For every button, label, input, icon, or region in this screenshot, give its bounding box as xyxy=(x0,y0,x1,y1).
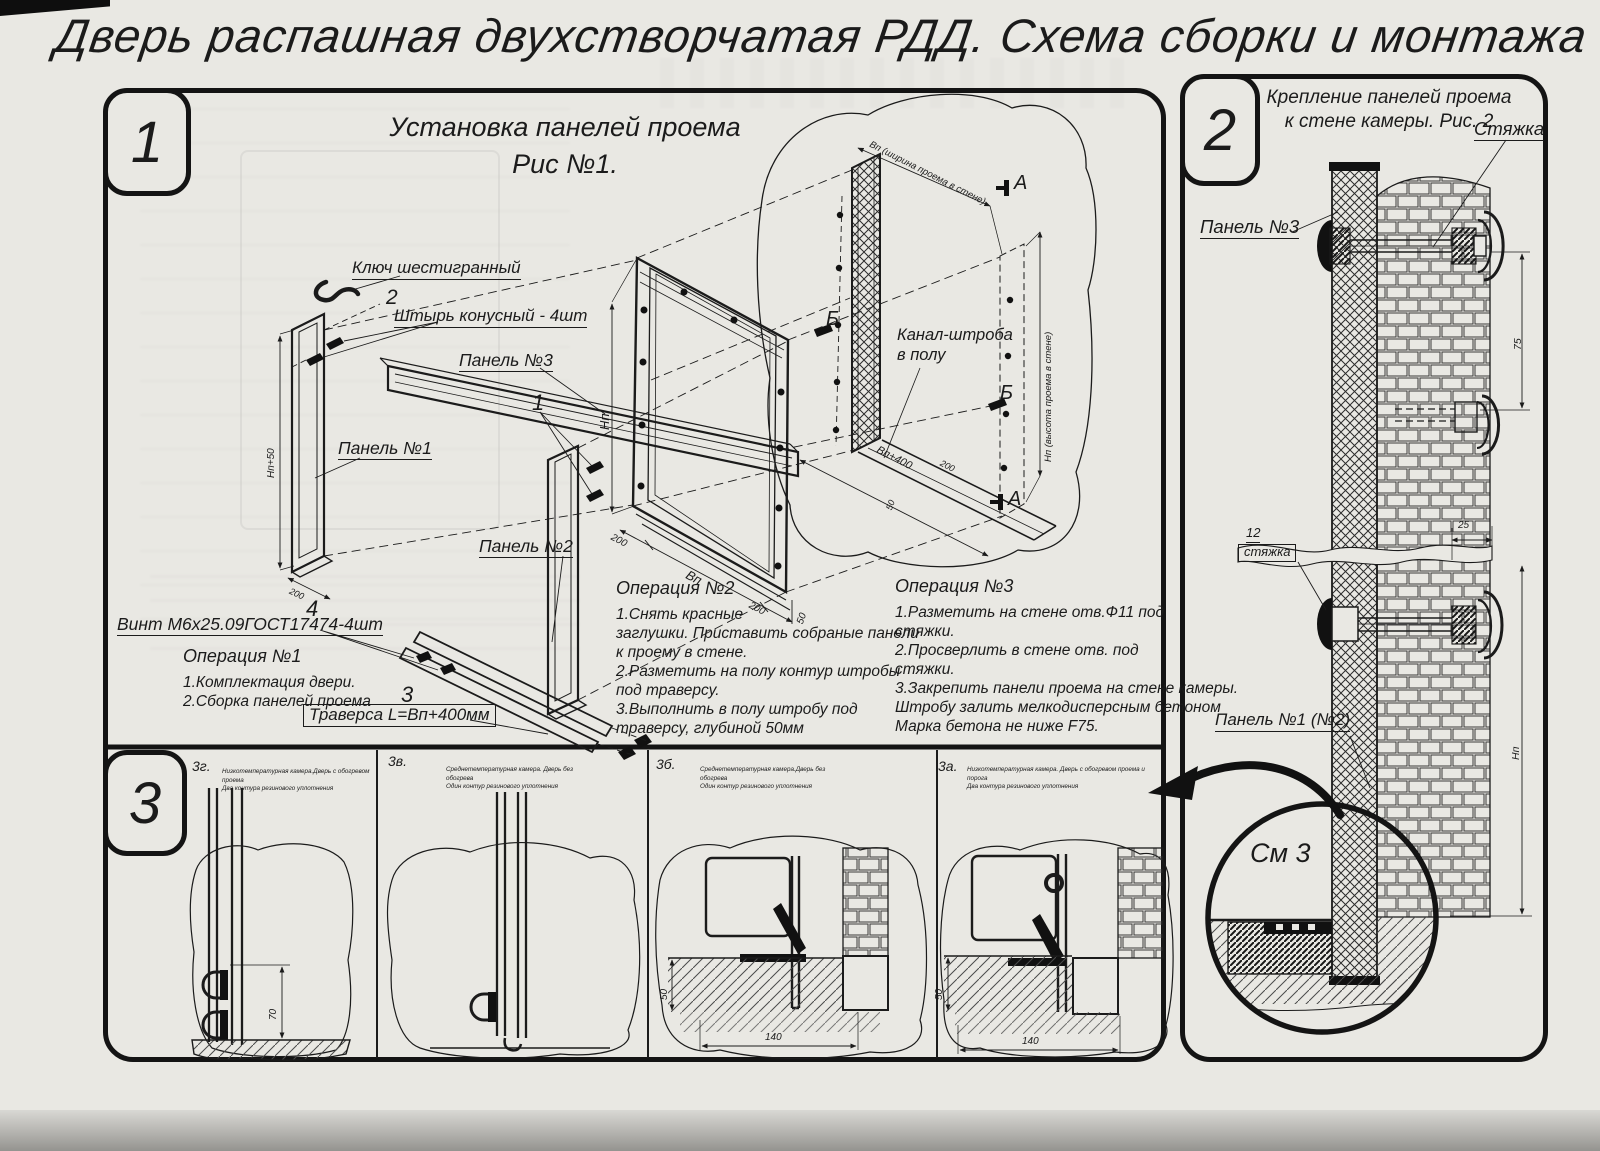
section1-number: 1 xyxy=(131,109,163,176)
panel1-label: Панель №1 xyxy=(338,438,432,460)
operation3-line: 3.Закрепить панели проема на стене камер… xyxy=(895,679,1238,698)
detail-3v-desc1: Среднетемпературная камера. Дверь без об… xyxy=(446,766,601,783)
tie-rod-label-2: стяжка xyxy=(1238,544,1296,562)
dim-50-3b: 50 xyxy=(659,989,671,1000)
detail-3b-desc: Среднетемпературная камера.Дверь без обо… xyxy=(700,766,850,792)
detail-3b-desc2: Один контур резинового уплотнения xyxy=(700,783,850,792)
operation1-line: 2.Сборка панелей проема xyxy=(183,692,371,711)
cone-pin-label: Штырь конусный - 4шт xyxy=(394,306,587,328)
see-detail-label: См 3 xyxy=(1250,838,1311,869)
section-mark-b: Б xyxy=(1000,382,1013,405)
fig1-title-line1: Установка панелей проема xyxy=(380,112,750,143)
channel-label-line2: в полу xyxy=(897,346,945,365)
tie-item-number: 12 xyxy=(1246,526,1260,543)
dim-75: 75 xyxy=(1512,338,1524,350)
detail-3a-code: 3а. xyxy=(938,758,957,774)
detail-arrow xyxy=(1192,765,1340,815)
operation3-block: Операция №3 1.Разметить на стене отв.Ф11… xyxy=(895,576,1238,736)
detail-3g-desc1: Низкотемпературная камера.Дверь с обогре… xyxy=(222,768,380,785)
detail-3a-desc2: Два контура резинового уплотнения xyxy=(967,783,1157,792)
operation1-line: 1.Комплектация двери. xyxy=(183,673,371,692)
panel12-label: Панель №1 (№2) xyxy=(1215,710,1350,732)
operation3-title: Операция №3 xyxy=(895,576,1238,597)
operation3-line: 1.Разметить на стене отв.Ф11 под xyxy=(895,603,1238,622)
detail-3v-desc2: Один контур резинового уплотнения xyxy=(446,783,601,792)
fig2-title-line1: Крепление панелей проема xyxy=(1264,86,1514,110)
operation1-title: Операция №1 xyxy=(183,646,371,667)
dim-140-3a: 140 xyxy=(1022,1036,1039,1048)
detail-3b-code: 3б. xyxy=(656,756,676,772)
operation3-line: Штробу залить мелкодисперсным бетоном xyxy=(895,698,1238,717)
section3-number: 3 xyxy=(129,770,161,837)
panel2-label: Панель №2 xyxy=(479,536,573,558)
detail-3a-desc1: Низкотемпературная камера. Дверь с обогр… xyxy=(967,766,1157,783)
item-no-1: 1 xyxy=(532,390,544,415)
detail-3v-desc: Среднетемпературная камера. Дверь без об… xyxy=(446,766,601,792)
panel3-label-sec2: Панель №3 xyxy=(1200,216,1299,239)
operation2-title: Операция №2 xyxy=(616,578,919,599)
channel-label-line1: Канал-штроба xyxy=(897,326,1013,345)
detail-3v-code: 3в. xyxy=(388,753,407,769)
section-mark-b: Б xyxy=(826,308,839,331)
operation2-line: 3.Выполнить в полу штробу под xyxy=(616,700,919,719)
dim-70-3g: 70 xyxy=(268,1009,280,1020)
operation3-line: 2.Просверлить в стене отв. под xyxy=(895,641,1238,660)
fig1-title: Установка панелей проема Рис №1. xyxy=(380,112,750,180)
detail-3a-desc: Низкотемпературная камера. Дверь с обогр… xyxy=(967,766,1157,792)
dim-25: 25 xyxy=(1458,520,1469,532)
panel3-label: Панель №3 xyxy=(459,350,553,372)
section-mark-a: А xyxy=(1014,172,1027,195)
threshold-details xyxy=(190,788,1173,1060)
line-art-layer xyxy=(0,0,1600,1151)
assembled-frame-view xyxy=(612,258,988,624)
hex-key-icon xyxy=(316,282,358,300)
detail-3g-code: 3г. xyxy=(192,758,211,774)
operation3-line: стяжки. xyxy=(895,622,1238,641)
dim-wall-height: Нп (высота проема в стене) xyxy=(1044,332,1055,462)
dim-140-3b: 140 xyxy=(765,1032,782,1044)
operation2-line: заглушки. Приставить собраные панели xyxy=(616,624,919,643)
hex-key-label: Ключ шестигранный xyxy=(352,258,521,280)
dim-np: Нп xyxy=(598,413,613,430)
dim-np-sec2: Нп xyxy=(1510,747,1522,760)
operation1-block: Операция №1 1.Комплектация двери. 2.Сбор… xyxy=(183,646,371,711)
operation2-block: Операция №2 1.Снять красные заглушки. Пр… xyxy=(616,578,919,738)
dim-50-3a: 50 xyxy=(934,989,946,1000)
screw-label: Винт М6х25.09ГОСТ17474-4шт xyxy=(117,614,383,636)
section-mark-a: А xyxy=(1008,488,1021,511)
dim-np50: Нп+50 xyxy=(266,448,278,478)
section2-badge: 2 xyxy=(1180,74,1260,186)
detail-3g-desc2: Два контура резинового уплотнения xyxy=(222,785,380,794)
operation2-line: траверсу, глубиной 50мм xyxy=(616,719,919,738)
operation2-line: 1.Снять красные xyxy=(616,605,919,624)
operation2-line: под траверсу. xyxy=(616,681,919,700)
tie-rod-label: Стяжка xyxy=(1474,118,1544,141)
section2-number: 2 xyxy=(1204,97,1236,164)
detail-3b-desc1: Среднетемпературная камера.Дверь без обо… xyxy=(700,766,850,783)
operation2-line: 2.Разметить на полу контур штробы xyxy=(616,662,919,681)
operation2-line: к проему в стене. xyxy=(616,643,919,662)
drawing-sheet: Дверь распашная двухстворчатая РДД. Схем… xyxy=(0,0,1600,1151)
section3-badge: 3 xyxy=(103,750,187,856)
detail-3g-desc: Низкотемпературная камера.Дверь с обогре… xyxy=(222,768,380,794)
section1-badge: 1 xyxy=(103,88,191,196)
fig1-title-line2: Рис №1. xyxy=(380,149,750,180)
operation3-line: стяжки. xyxy=(895,660,1238,679)
operation3-line: Марка бетона не ниже F75. xyxy=(895,717,1238,736)
